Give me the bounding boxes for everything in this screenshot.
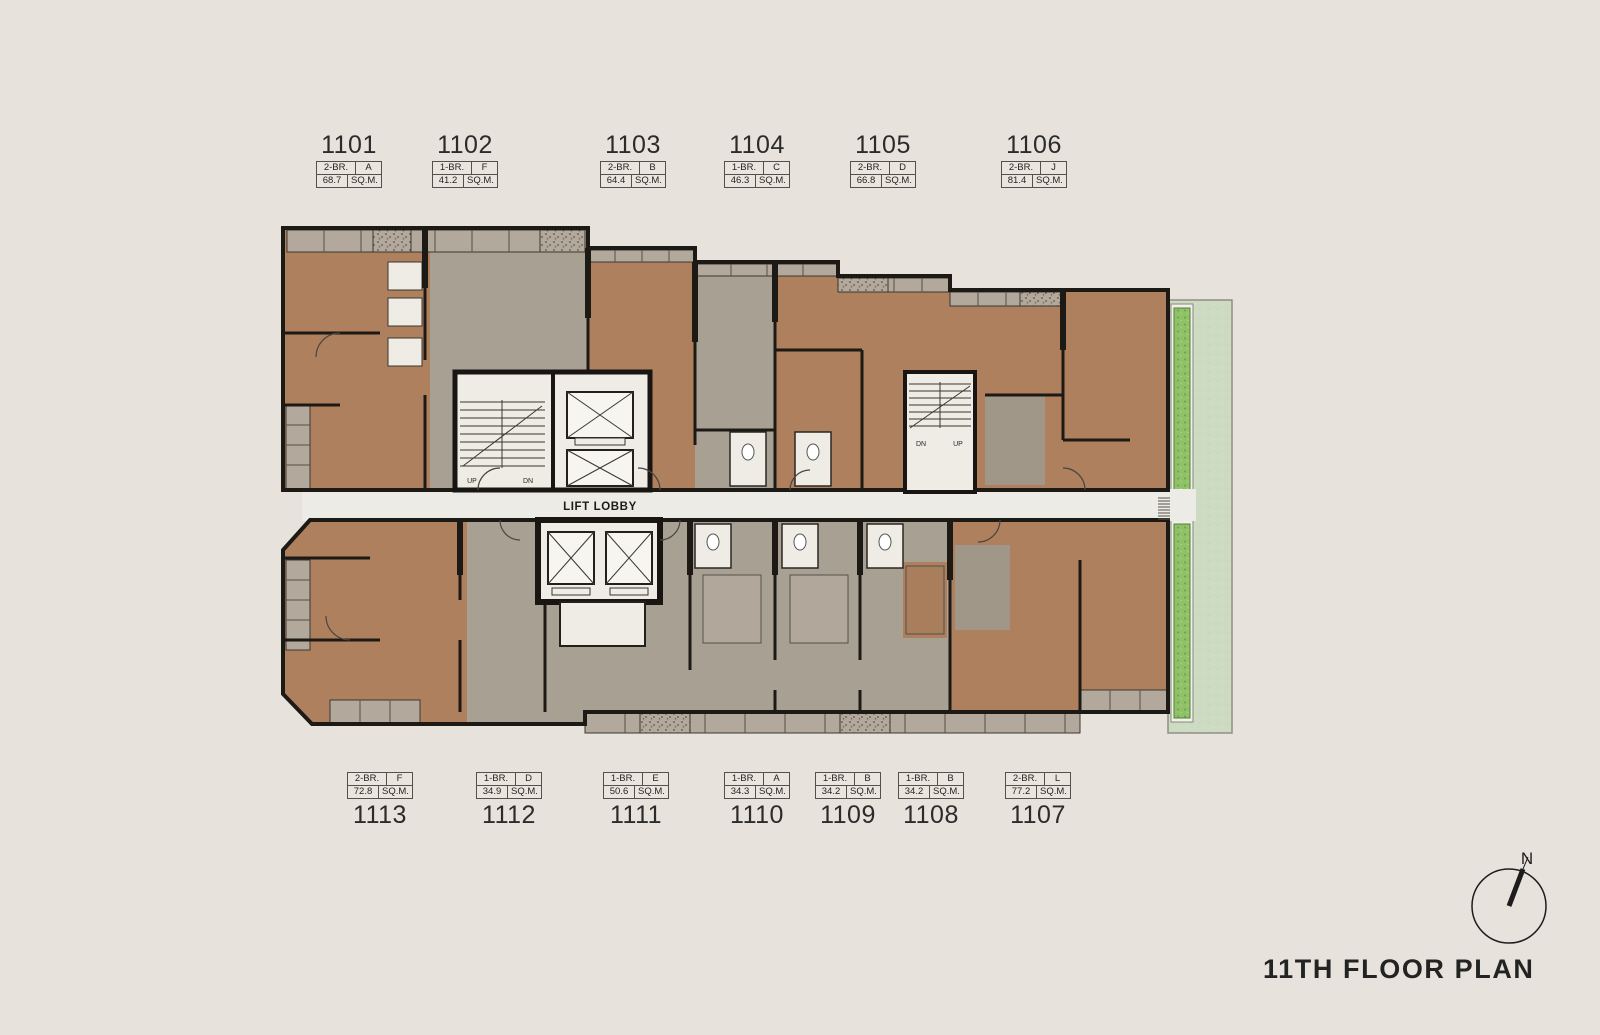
unit-label-1108: 1-BR.B 34.2SQ.M. 1108 xyxy=(883,772,979,828)
stair-up-label: UP xyxy=(467,478,477,485)
corridor xyxy=(302,489,1196,521)
unit-label-1109: 1-BR.B 34.2SQ.M. 1109 xyxy=(800,772,896,828)
unit-number: 1101 xyxy=(301,132,397,158)
unit-info-table: 2-BR.L 77.2SQ.M. xyxy=(1005,772,1071,799)
plan-title: 11TH FLOOR PLAN xyxy=(1263,954,1535,985)
unit-info-table: 1-BR.C 46.3SQ.M. xyxy=(724,161,790,188)
unit-info-table: 1-BR.B 34.2SQ.M. xyxy=(815,772,881,799)
stair-dn-label: DN xyxy=(916,441,926,448)
unit-number: 1102 xyxy=(417,132,513,158)
unit-info-table: 2-BR.A 68.7SQ.M. xyxy=(316,161,382,188)
floor-plan-page: UP DN DN UP xyxy=(0,0,1600,1035)
stair-lift-core-left: UP DN xyxy=(455,372,650,490)
unit-number: 1104 xyxy=(709,132,805,158)
north-label: N xyxy=(1521,849,1533,868)
unit-number: 1111 xyxy=(588,802,684,828)
unit-label-1105: 1105 2-BR.D 66.8SQ.M. xyxy=(835,132,931,188)
unit-info-table: 1-BR.F 41.2SQ.M. xyxy=(432,161,498,188)
unit-label-1104: 1104 1-BR.C 46.3SQ.M. xyxy=(709,132,805,188)
unit-label-1111: 1-BR.E 50.6SQ.M. 1111 xyxy=(588,772,684,828)
unit-info-table: 1-BR.A 34.3SQ.M. xyxy=(724,772,790,799)
unit-label-1112: 1-BR.D 34.9SQ.M. 1112 xyxy=(461,772,557,828)
unit-number: 1112 xyxy=(461,802,557,828)
unit-label-1102: 1102 1-BR.F 41.2SQ.M. xyxy=(417,132,513,188)
unit-number: 1107 xyxy=(990,802,1086,828)
unit-info-table: 1-BR.B 34.2SQ.M. xyxy=(898,772,964,799)
unit-info-table: 2-BR.F 72.8SQ.M. xyxy=(347,772,413,799)
bathroom-fixtures xyxy=(388,262,422,366)
unit-number: 1109 xyxy=(800,802,896,828)
unit-info-table: 2-BR.D 66.8SQ.M. xyxy=(850,161,916,188)
unit-number: 1110 xyxy=(709,802,805,828)
unit-info-table: 2-BR.J 81.4SQ.M. xyxy=(1001,161,1067,188)
unit-number: 1103 xyxy=(585,132,681,158)
unit-number: 1106 xyxy=(986,132,1082,158)
unit-number: 1108 xyxy=(883,802,979,828)
unit-label-1103: 1103 2-BR.B 64.4SQ.M. xyxy=(585,132,681,188)
unit-label-1107: 2-BR.L 77.2SQ.M. 1107 xyxy=(990,772,1086,828)
stair-up-label: UP xyxy=(953,441,963,448)
stair-core-right: DN UP xyxy=(905,372,975,492)
unit-number: 1113 xyxy=(332,802,428,828)
unit-info-table: 2-BR.B 64.4SQ.M. xyxy=(600,161,666,188)
unit-label-1110: 1-BR.A 34.3SQ.M. 1110 xyxy=(709,772,805,828)
unit-1106-area xyxy=(950,290,1168,490)
unit-label-1106: 1106 2-BR.J 81.4SQ.M. xyxy=(986,132,1082,188)
compass: N xyxy=(1472,849,1546,943)
unit-info-table: 1-BR.E 50.6SQ.M. xyxy=(603,772,669,799)
unit-label-1113: 2-BR.F 72.8SQ.M. 1113 xyxy=(332,772,428,828)
unit-number: 1105 xyxy=(835,132,931,158)
unit-label-1101: 1101 2-BR.A 68.7SQ.M. xyxy=(301,132,397,188)
unit-info-table: 1-BR.D 34.9SQ.M. xyxy=(476,772,542,799)
lift-lobby-label: LIFT LOBBY xyxy=(539,501,661,513)
unit-1113-area xyxy=(283,520,467,724)
stair-dn-label: DN xyxy=(523,478,533,485)
bed-furniture xyxy=(703,566,944,643)
